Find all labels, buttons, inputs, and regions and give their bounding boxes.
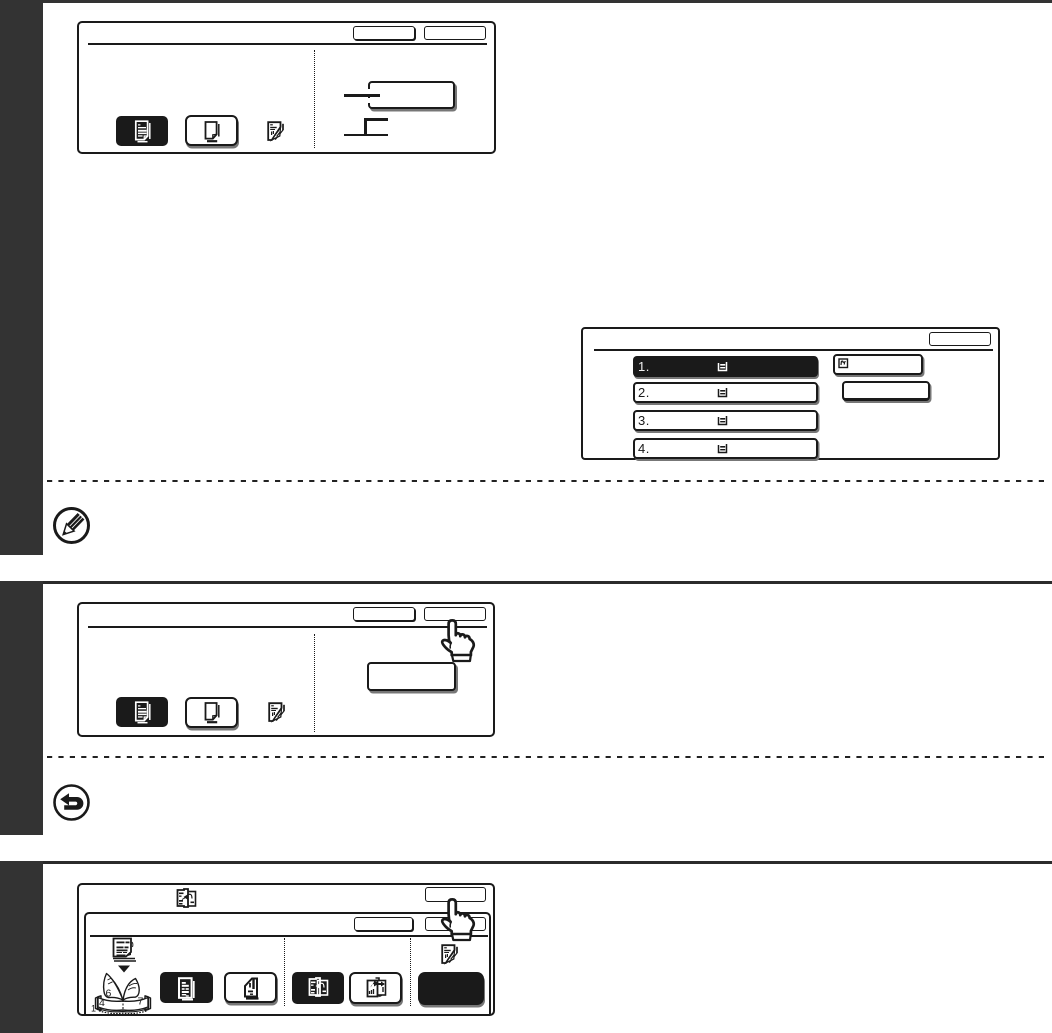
svg-text:6: 6 [106,988,112,1000]
svg-text:1~: 1~ [91,1004,101,1014]
svg-text:7: 7 [138,996,144,1008]
